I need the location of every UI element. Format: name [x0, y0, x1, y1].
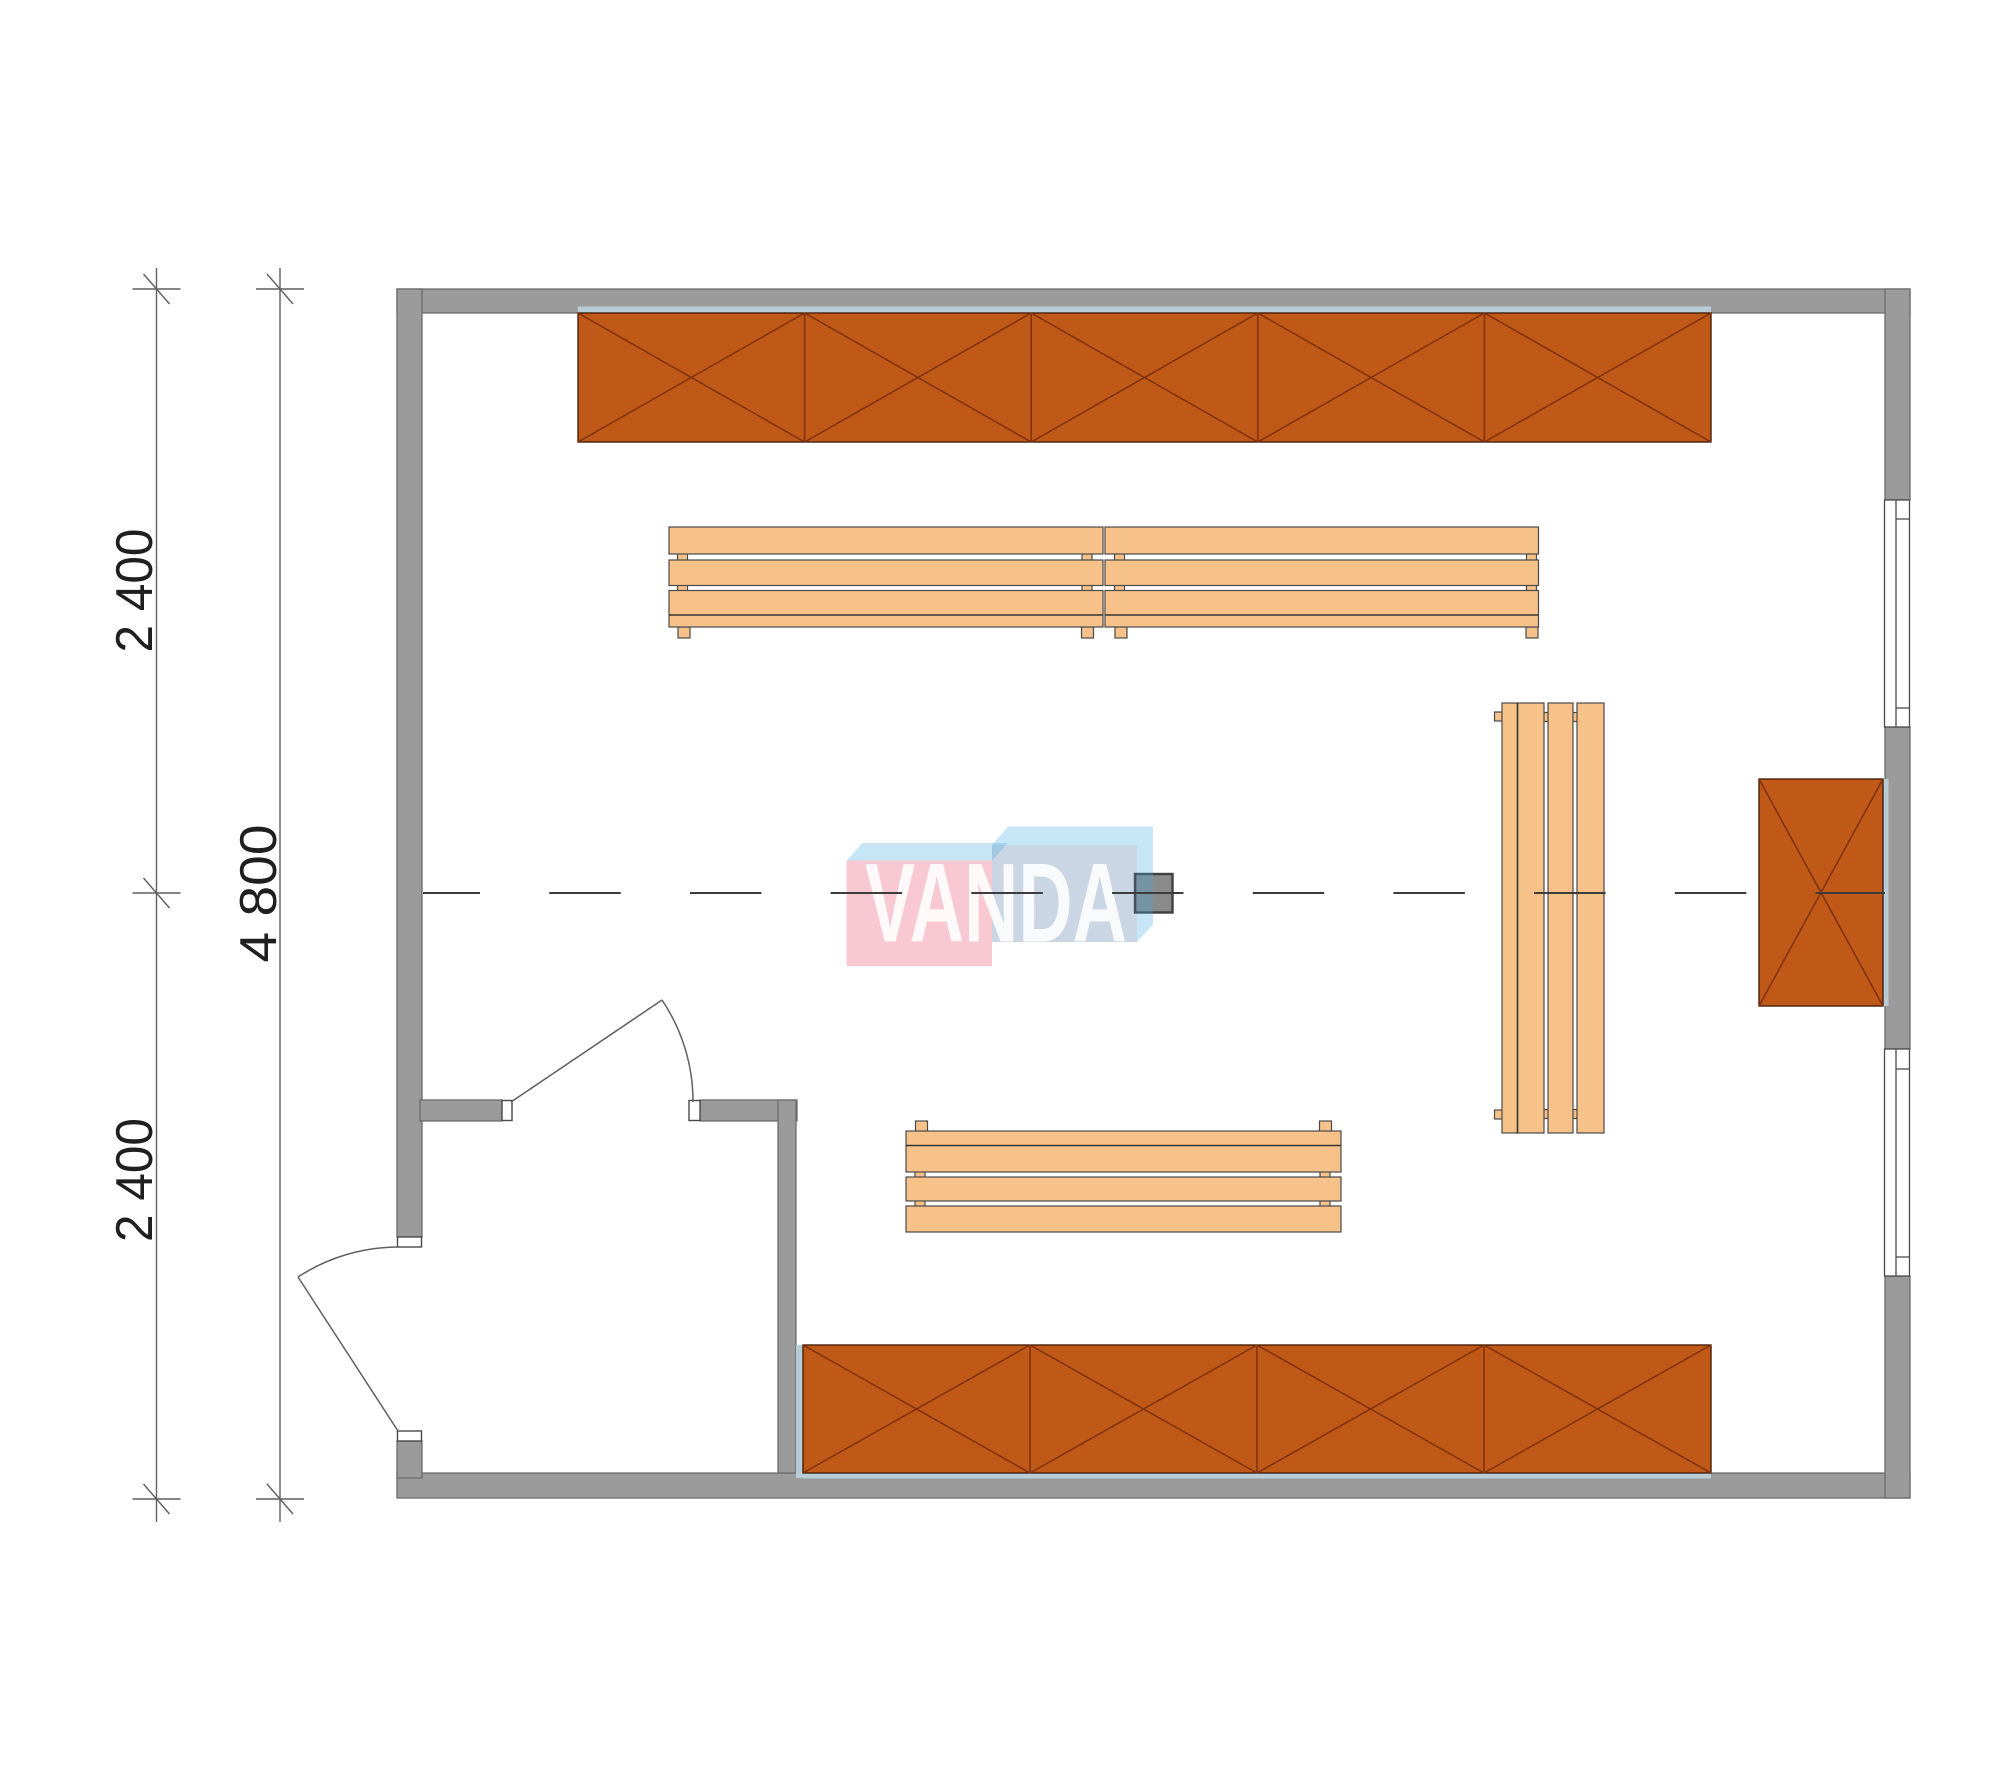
svg-text:2 400: 2 400 — [106, 1118, 164, 1242]
svg-text:4 800: 4 800 — [230, 825, 288, 963]
svg-text:VANDA: VANDA — [865, 841, 1127, 966]
svg-text:2 400: 2 400 — [106, 529, 164, 653]
